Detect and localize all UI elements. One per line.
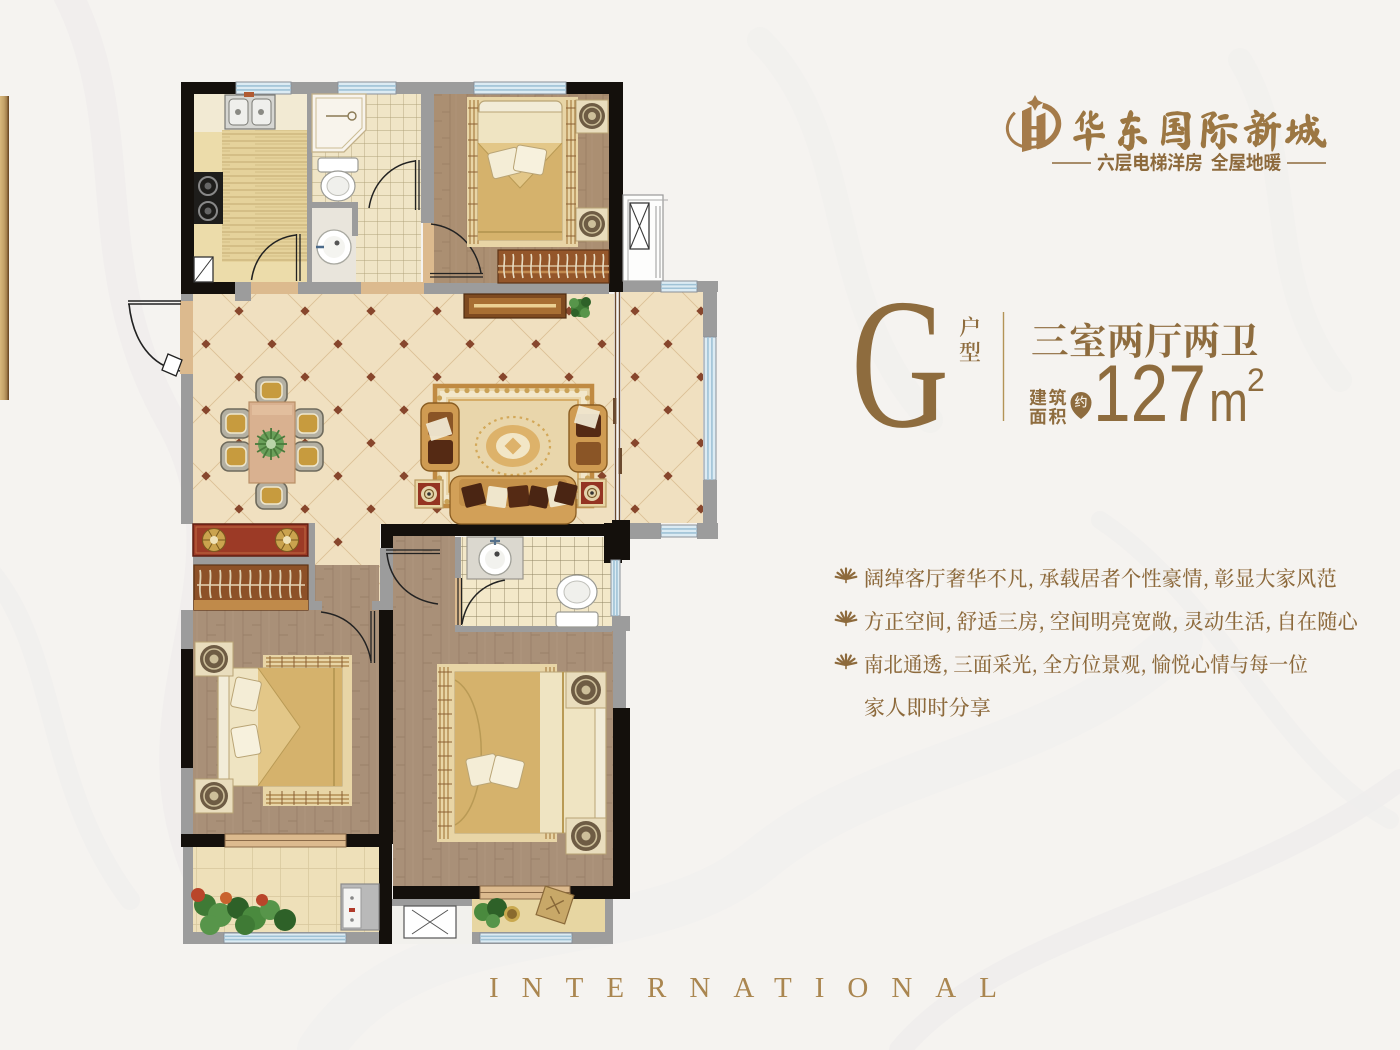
svg-text:INTERNATIONAL: INTERNATIONAL: [489, 972, 1020, 1004]
svg-text:2: 2: [1247, 362, 1265, 398]
svg-text:127: 127: [1093, 349, 1206, 439]
svg-text:m: m: [1209, 370, 1248, 434]
svg-text:G: G: [851, 261, 949, 467]
